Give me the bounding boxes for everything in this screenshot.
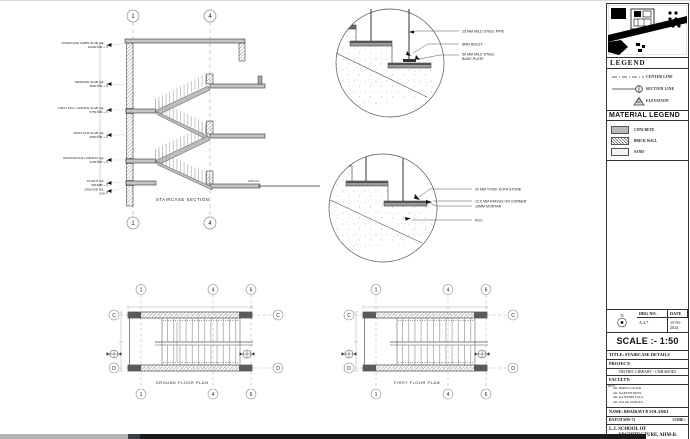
detail-label: 50 MM MILD STEEL	[462, 53, 495, 57]
detail-callout-tread: 20 MM THICK KOTA STONE 12.5 MM RADIUS ON…	[324, 154, 527, 262]
section-linework	[125, 39, 320, 206]
material-legend-title: MATERIAL LEGEND	[607, 111, 688, 121]
level-value: 9600 MM +	[89, 84, 105, 88]
level-value: 5750 MM +	[89, 110, 105, 114]
faculty-name: AR. PALAK PANDYA	[613, 400, 686, 405]
legend-item-label: CENTER LINE	[646, 75, 673, 79]
detail-label: 20 MM THICK KOTA STONE	[475, 187, 522, 191]
centerline-icon	[610, 73, 646, 81]
level-value: 12900 MM +	[88, 45, 105, 49]
key-map	[607, 4, 688, 58]
detail-label: 25 MM MILD STEEL PIPE	[462, 29, 505, 33]
faculty-names: PROF. AR. HIREN GAJJAR AR. NARESH PATEL …	[607, 385, 688, 408]
north-arrow: N	[607, 310, 637, 333]
sand-swatch-icon	[611, 148, 629, 156]
legend-item-centerline: CENTER LINE	[610, 71, 685, 83]
code-label: CODE:-	[673, 418, 687, 422]
legend-item-label: SECTION LINE	[646, 87, 674, 91]
level-value: 0.00	[99, 192, 105, 196]
legend-item-sectionline: SECTION LINE	[610, 83, 685, 95]
legend-title: LEGEND	[607, 58, 688, 69]
sheet-title: TITLE: STAIRCASE DETAILS	[607, 351, 688, 360]
detail-mid-labels: 20 MM THICK KOTA STONE 12.5 MM RADIUS ON…	[475, 187, 527, 222]
title-block-panel: LEGEND CENTER LINE SECTION LINE	[606, 3, 689, 439]
project-label: PROJECT:	[607, 360, 688, 369]
detail-top-labels: 25 MM MILD STEEL PIPE 8MM BOULT 50 MM MI…	[462, 29, 505, 61]
section-level-labels: STAIRCASE CABIN SLAB LVL. 12900 MM + TER…	[58, 41, 126, 196]
ground-level-note: 0.00 LVL	[248, 179, 260, 183]
section-title: STAIRCASE SECTION	[156, 197, 209, 202]
brick-swatch-icon	[611, 137, 629, 145]
drawing-canvas: 1 4 6 1 4 6 C D C D 1 4	[0, 1, 606, 439]
material-legend-items: CONCRETE BRICK WALL SAND	[607, 121, 688, 161]
date-value: 15-03-2024	[668, 318, 688, 333]
staircase-section: 1 4 1 4	[58, 10, 320, 229]
drg-no-label: DRG NO.	[637, 310, 668, 318]
detail-label: 8MM BOULT	[462, 42, 484, 46]
material-item-label: SAND	[634, 150, 644, 154]
level-value: 2100 MM +	[89, 160, 105, 164]
legend-item-label: ELEVATION	[646, 99, 669, 103]
detail-label: 10MM MORTAR	[475, 204, 502, 208]
faculty-label: FACULTY:	[607, 376, 688, 385]
key-map-image	[608, 5, 687, 55]
north-arrow-icon: N	[614, 312, 630, 329]
material-item-label: BRICK WALL	[634, 139, 657, 143]
detail-callout-railing: 25 MM MILD STEEL PIPE 8MM BOULT 50 MM MI…	[330, 9, 505, 117]
level-value: 4050 MM +	[89, 135, 105, 139]
batch-value: BATCH SDS-71	[609, 418, 635, 422]
window-bottom-bar	[0, 434, 646, 439]
concrete-swatch-icon	[611, 126, 629, 134]
svg-text:N: N	[620, 313, 624, 318]
legend-items: CENTER LINE SECTION LINE ELEVATION	[607, 69, 688, 111]
student-name: NAME: BHAIRAVI D SOLANKI	[607, 408, 688, 417]
ground-plan-title: GROUND FLOOR PLAN	[156, 380, 209, 385]
first-plan-title: FIRST FLOOR PLAN	[394, 380, 440, 385]
material-item-concrete: CONCRETE	[611, 124, 684, 135]
faculty-note: PROF.	[608, 385, 615, 388]
detail-label: BASE PLATE	[462, 57, 484, 61]
material-item-brick: BRICK WALL	[611, 135, 684, 146]
section-line-icon	[610, 84, 646, 94]
legend-item-elevation: ELEVATION	[610, 95, 685, 107]
date-label: DATE	[668, 310, 688, 318]
scale-text: SCALE :- 1:50	[607, 333, 688, 351]
title-block-table: DRG NO. DATE N A.4.7 15-03-2024 SCALE :-…	[607, 310, 688, 439]
drawing-sheet: 1 4 6 1 4 6 C D C D 1 4	[0, 0, 690, 439]
detail-label: 12.5 MM RADIUS ON CORNER	[475, 199, 527, 203]
section-dimension-line	[97, 43, 103, 191]
project-value: DISTRIC LIBRARY - CHHARODI	[607, 369, 688, 376]
material-item-label: CONCRETE	[634, 128, 654, 132]
material-item-sand: SAND	[611, 146, 684, 157]
level-value: 300 MM +	[91, 183, 105, 187]
batch-code-row: BATCH SDS-71 CODE:-	[607, 417, 688, 425]
panel-spacer	[607, 161, 688, 310]
detail-label: RCC	[475, 218, 483, 222]
drg-no-value: A.4.7	[637, 318, 668, 333]
elevation-icon	[610, 96, 646, 107]
